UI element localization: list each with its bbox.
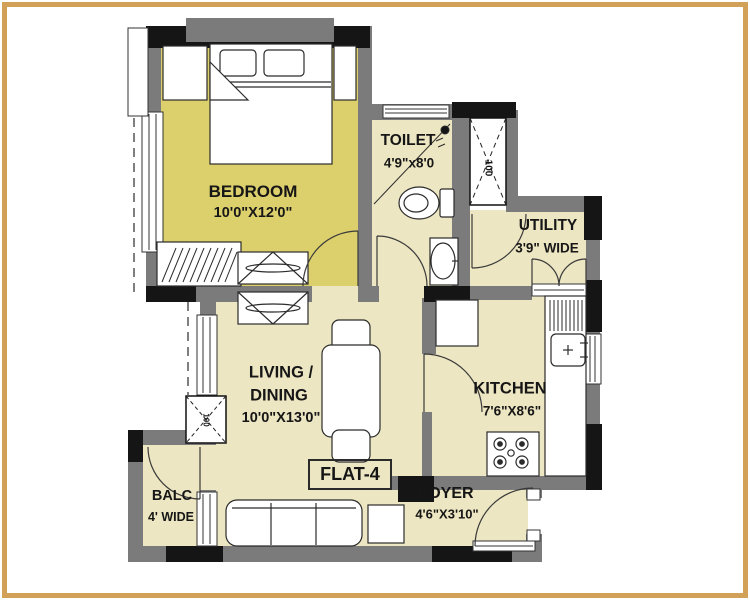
bedroom-door-opening	[312, 286, 358, 302]
toilet-label: TOILET	[381, 132, 436, 150]
living-label-line2: DINING	[250, 387, 308, 406]
washbasin-bowl	[431, 243, 455, 279]
balcony-window	[197, 492, 217, 546]
wc-tank	[440, 189, 454, 217]
bedroom-window	[142, 112, 163, 252]
bedside-table-right	[334, 46, 356, 100]
utility-dims: 3'9" WIDE	[515, 241, 579, 256]
kitchen-window	[585, 334, 601, 384]
balcony-door-opening	[200, 445, 216, 492]
living-label-line1: LIVING /	[249, 364, 313, 383]
bedroom-label: BEDROOM	[209, 182, 298, 202]
floor-plan-page: BEDROOM 10'0"X12'0" TOILET 4'9"x8'0 UTIL…	[0, 0, 750, 600]
duct2-label: 100	[202, 413, 211, 426]
kitchen-dims: 7'6"X8'6"	[483, 404, 541, 419]
foyer-label: FOYER	[418, 485, 473, 503]
bedroom-top-lintel	[186, 18, 334, 42]
balcony-dims: 4' WIDE	[148, 510, 194, 524]
duct1-label: 100	[483, 160, 494, 177]
foyer-dims: 4'6"X3'10"	[415, 507, 478, 522]
floor-plan-drawing	[0, 0, 750, 600]
entrance-jamb-bottom	[527, 530, 540, 541]
bedroom-dims: 10'0"X12'0"	[214, 205, 293, 221]
living-dims: 10'0"X13'0"	[242, 410, 321, 426]
flat-number-box: FLAT-4	[308, 459, 392, 490]
exterior-pilaster	[128, 28, 148, 116]
balcony-label: BALC	[152, 488, 192, 504]
toilet-dims: 4'9"x8'0	[384, 156, 434, 171]
dining-chair-bottom	[332, 430, 370, 462]
pillow-left	[220, 50, 256, 76]
fridge	[436, 300, 478, 346]
entrance-jamb-top	[527, 489, 540, 500]
flat-number-label: FLAT-4	[320, 464, 380, 485]
toilet-door-opening	[379, 286, 424, 302]
living-west-window	[197, 315, 217, 395]
toilet-window	[383, 105, 449, 118]
utility-label: UTILITY	[519, 217, 578, 235]
bedside-table-left	[163, 46, 207, 100]
sofa	[226, 500, 362, 546]
dining-table	[322, 345, 380, 437]
pillow-right	[264, 50, 304, 76]
side-table	[368, 505, 404, 543]
kitchen-label: KITCHEN	[473, 380, 546, 399]
shower-head	[441, 126, 449, 134]
